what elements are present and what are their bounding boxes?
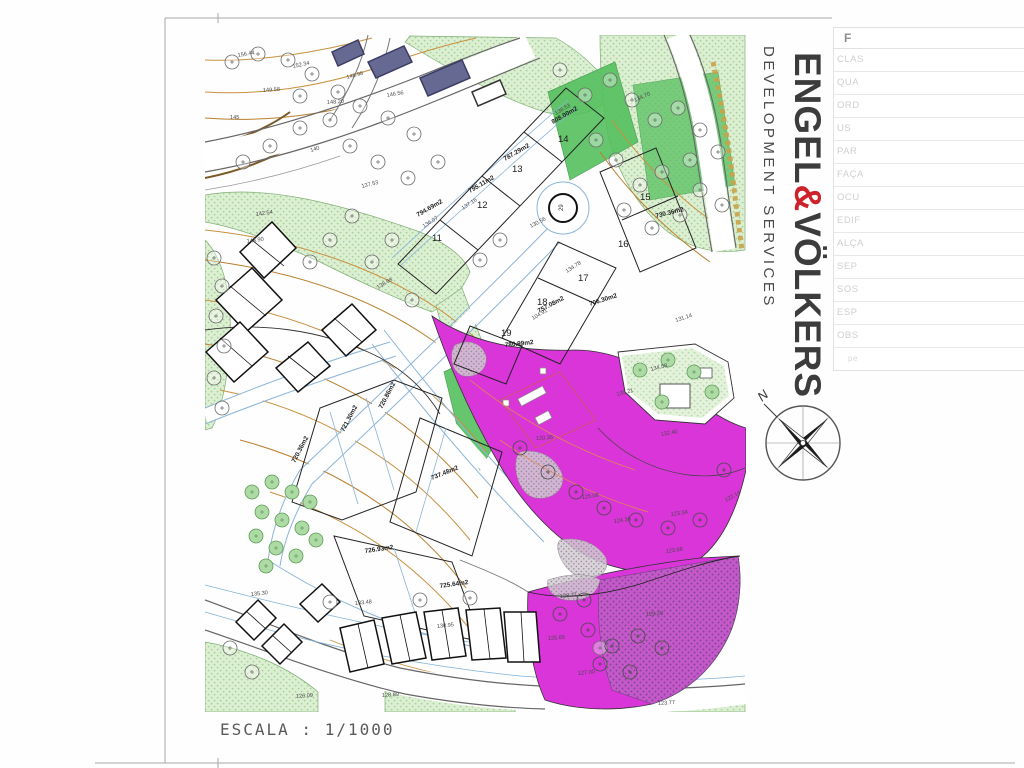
map-label: 133.48 — [355, 599, 373, 607]
planning-table-row: ORD — [834, 95, 1024, 118]
map-label: 140 — [310, 145, 321, 154]
map-label: 135.30 — [251, 590, 269, 598]
map-label: 148.20 — [327, 99, 344, 106]
logo-text-post: VÖLKERS — [787, 212, 828, 398]
planning-table-row: OBS — [834, 325, 1024, 348]
planning-table-row: ESP — [834, 302, 1024, 325]
map-label: 137.53 — [361, 180, 379, 190]
logo-subtitle: DEVELOPMENT SERVICES — [760, 46, 777, 309]
plan-sheet: 156.44152.34148.98149.58148.20146.561451… — [0, 0, 1024, 768]
logo-text-pre: ENGEL — [787, 52, 828, 184]
map-label: 19 — [501, 328, 512, 339]
map-label: 16 — [618, 239, 629, 250]
map-label: 128.89 — [382, 692, 399, 699]
planning-table-header: F — [834, 28, 1024, 49]
planning-table-row: FAÇA — [834, 164, 1024, 187]
planning-table-row: PAR — [834, 141, 1024, 164]
planning-data-table: F CLASQUAORDUSPARFAÇAOCUEDIFALÇASEPSOSES… — [833, 27, 1024, 371]
map-label: 18 — [537, 297, 548, 308]
map-label: 13 — [512, 164, 523, 175]
compass-rose: N — [754, 386, 851, 491]
map-label: 726.93m2 — [364, 544, 394, 555]
planning-table-row: EDIF — [834, 210, 1024, 233]
map-label: 148.98 — [346, 71, 364, 81]
planning-table-row: OCU — [834, 187, 1024, 210]
map-area: 156.44152.34148.98149.58148.20146.561451… — [205, 35, 746, 712]
map-label: 136.07 — [422, 215, 440, 229]
planning-table-row: SEP — [834, 256, 1024, 279]
map-label: 125.65 — [548, 635, 565, 642]
map-label: 123.77 — [658, 700, 675, 707]
map-label: 15 — [640, 192, 651, 203]
map-label: 29 — [559, 204, 565, 211]
planning-table-row: US — [834, 118, 1024, 141]
map-label: 130.56 — [529, 216, 547, 229]
map-label: 149.58 — [263, 87, 280, 94]
logo-ampersand: & — [787, 184, 828, 212]
map-label: 129.29 — [646, 611, 663, 618]
logo-engel-voelkers: ENGEL&VÖLKERS — [786, 52, 828, 398]
map-label: 794.69m2 — [416, 198, 445, 219]
map-label: 120.36 — [536, 435, 553, 442]
compass-north-label: N — [754, 386, 771, 404]
planning-table-row: QUA — [834, 72, 1024, 95]
map-label: 17 — [578, 273, 589, 284]
planning-table-row: SOS — [834, 279, 1024, 302]
scale-label: ESCALA : 1/1000 — [220, 720, 395, 739]
planning-table-row: pe — [834, 348, 1024, 370]
map-label: 126.09 — [296, 693, 313, 700]
map-label: 145 — [230, 115, 239, 121]
map-label: 706.30m2 — [588, 292, 618, 308]
map-label: 131.14 — [675, 313, 693, 324]
map-label: 11 — [432, 233, 442, 244]
map-label: 725.64m2 — [439, 579, 469, 590]
map-label: 14 — [558, 134, 569, 145]
map-label: 137.16 — [461, 197, 479, 211]
planning-table-row: CLAS — [834, 49, 1024, 72]
map-label: 12 — [477, 200, 488, 211]
planning-table-row: ALÇA — [834, 233, 1024, 256]
